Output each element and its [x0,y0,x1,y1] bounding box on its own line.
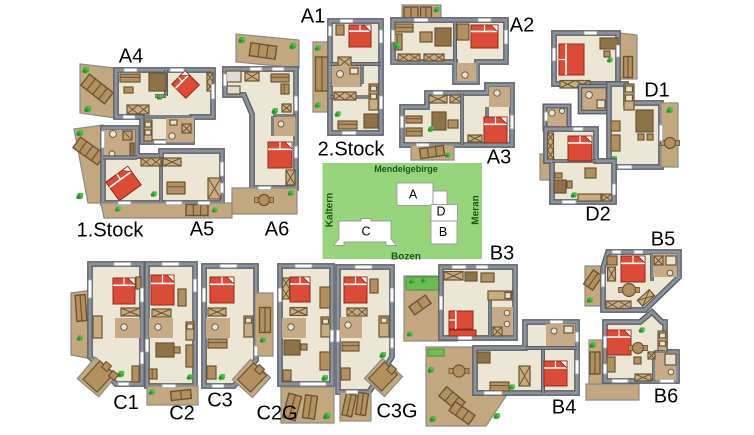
svg-text:D1: D1 [644,79,670,101]
svg-text:1.Stock: 1.Stock [77,219,145,241]
svg-text:C2: C2 [169,402,195,424]
svg-text:Bozen: Bozen [391,252,421,263]
svg-text:B5: B5 [651,228,675,250]
svg-text:C3G: C3G [376,400,417,422]
svg-text:A1: A1 [301,5,325,27]
svg-text:A: A [409,187,418,201]
svg-text:A3: A3 [487,146,511,168]
svg-text:A4: A4 [119,45,143,67]
svg-text:C3: C3 [207,389,233,411]
svg-text:C1: C1 [113,392,139,414]
svg-text:B3: B3 [490,242,514,264]
svg-text:D2: D2 [585,203,611,225]
svg-text:Kaltern: Kaltern [325,193,336,227]
svg-text:Mendelgebirge: Mendelgebirge [374,164,438,174]
svg-text:2.Stock: 2.Stock [318,138,386,160]
svg-text:B6: B6 [654,385,678,407]
svg-text:C2G: C2G [256,402,297,424]
svg-text:Meran: Meran [471,195,482,224]
svg-text:C: C [361,224,370,238]
svg-text:B4: B4 [552,396,576,418]
svg-text:D: D [436,204,445,218]
svg-text:A6: A6 [265,218,289,240]
svg-text:B: B [439,225,447,239]
svg-text:A2: A2 [510,14,534,36]
svg-text:A5: A5 [190,218,214,240]
